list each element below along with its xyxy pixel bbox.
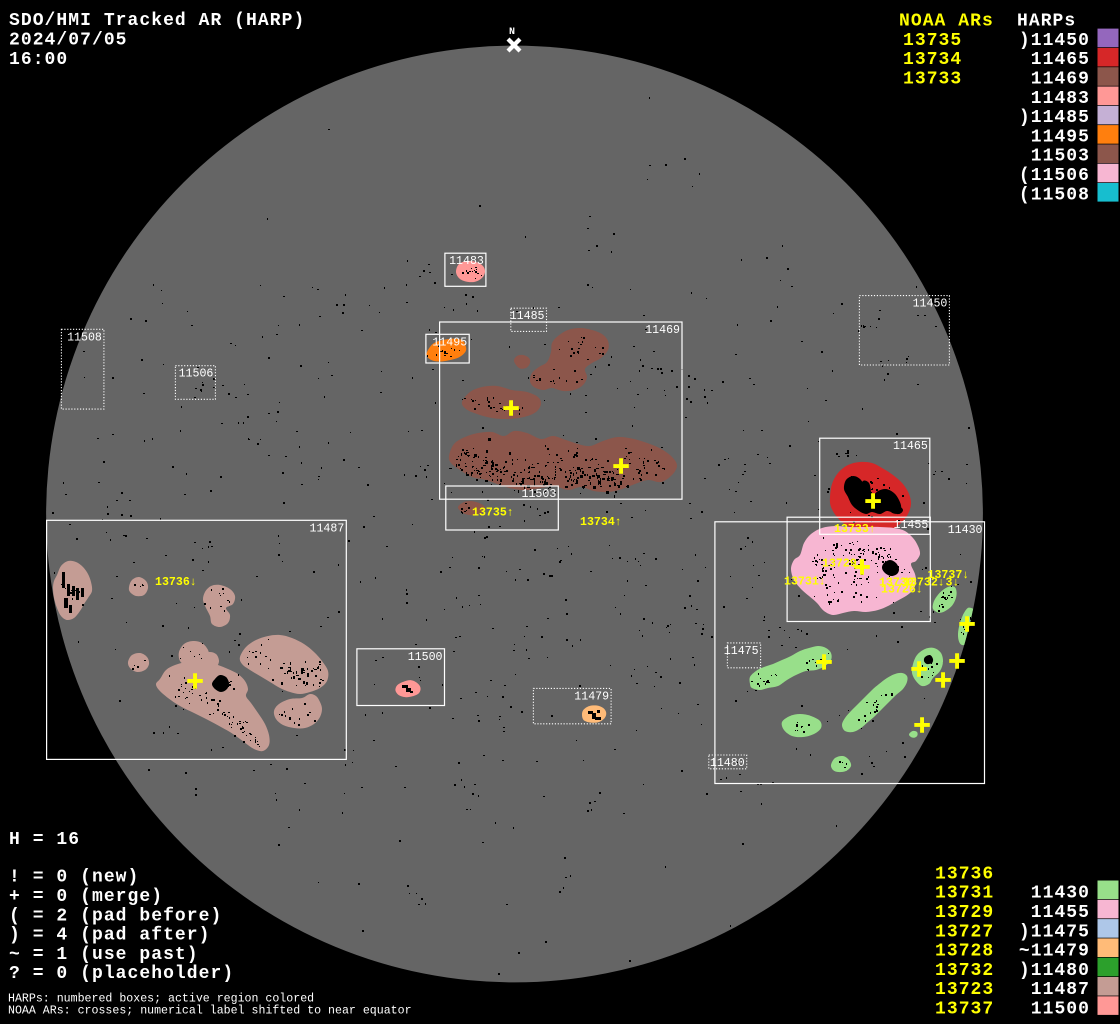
svg-text:)11485: )11485 — [1019, 108, 1090, 128]
svg-text:13737↓: 13737↓ — [928, 569, 970, 582]
svg-text:13736↓: 13736↓ — [155, 576, 197, 589]
svg-text:SDO/HMI Tracked AR (HARP): SDO/HMI Tracked AR (HARP) — [9, 11, 305, 31]
svg-text:11483: 11483 — [449, 255, 484, 268]
svg-text:13735↑: 13735↑ — [472, 507, 514, 520]
svg-text:( = 2 (pad before): ( = 2 (pad before) — [9, 906, 222, 926]
svg-text:11503: 11503 — [1031, 147, 1090, 167]
svg-text:(11506: (11506 — [1019, 166, 1090, 186]
svg-text:11495: 11495 — [432, 336, 467, 349]
svg-text:~ = 1 (use past): ~ = 1 (use past) — [9, 945, 199, 965]
svg-text:13733: 13733 — [903, 70, 962, 90]
svg-text:13735: 13735 — [903, 31, 962, 51]
svg-text:11480: 11480 — [710, 757, 745, 770]
svg-text:)11475: )11475 — [1019, 922, 1090, 942]
svg-text:13734: 13734 — [903, 50, 962, 70]
svg-text:13723: 13723 — [935, 980, 994, 1000]
svg-text:)11450: )11450 — [1019, 31, 1090, 51]
svg-text:11506: 11506 — [179, 368, 214, 381]
svg-text:13729: 13729 — [935, 903, 994, 923]
svg-text:13736: 13736 — [935, 864, 994, 884]
svg-text:? = 0 (placeholder): ? = 0 (placeholder) — [9, 964, 234, 984]
svg-text:13728: 13728 — [935, 942, 994, 962]
svg-text:13733↑: 13733↑ — [834, 523, 876, 536]
svg-text:! = 0 (new): ! = 0 (new) — [9, 868, 139, 888]
svg-text:11450: 11450 — [913, 298, 948, 311]
svg-text:11487: 11487 — [310, 522, 345, 535]
svg-text:H = 16: H = 16 — [9, 830, 80, 850]
svg-text:)11480: )11480 — [1019, 961, 1090, 981]
svg-text:11430: 11430 — [1031, 884, 1090, 904]
svg-text:13727: 13727 — [935, 922, 994, 942]
svg-text:HARPs: HARPs — [1017, 12, 1076, 32]
svg-text:11465: 11465 — [893, 440, 928, 453]
svg-text:11455: 11455 — [1031, 903, 1090, 923]
svg-text:11469: 11469 — [1031, 70, 1090, 90]
svg-text:(11508: (11508 — [1019, 185, 1090, 205]
svg-text:11475: 11475 — [724, 645, 759, 658]
svg-text:13734↑: 13734↑ — [580, 516, 622, 529]
svg-text:NOAA ARs: crosses; numerical l: NOAA ARs: crosses; numerical label shift… — [8, 1004, 412, 1017]
svg-text:13731↓: 13731↓ — [784, 576, 826, 589]
svg-text:11469: 11469 — [645, 324, 680, 337]
svg-text:11508: 11508 — [67, 331, 102, 344]
svg-text:13729↓: 13729↓ — [822, 558, 864, 571]
svg-text:13737: 13737 — [935, 1000, 994, 1020]
svg-text:13732: 13732 — [935, 961, 994, 981]
svg-text:N: N — [509, 27, 515, 38]
svg-text:13726↓: 13726↓ — [881, 584, 923, 597]
svg-text:11455: 11455 — [894, 519, 929, 532]
svg-text:16:00: 16:00 — [9, 50, 68, 70]
svg-text:) = 4 (pad after): ) = 4 (pad after) — [9, 926, 210, 946]
svg-text:~11479: ~11479 — [1019, 942, 1090, 962]
svg-text:11500: 11500 — [408, 651, 443, 664]
svg-text:NOAA ARs: NOAA ARs — [899, 12, 994, 32]
svg-text:11503: 11503 — [522, 488, 557, 501]
svg-text:11485: 11485 — [510, 310, 545, 323]
svg-text:2024/07/05: 2024/07/05 — [9, 31, 128, 51]
svg-text:11465: 11465 — [1031, 50, 1090, 70]
svg-text:11483: 11483 — [1031, 89, 1090, 109]
svg-text:11479: 11479 — [574, 690, 609, 703]
svg-text:11430: 11430 — [948, 524, 983, 537]
svg-text:13731: 13731 — [935, 884, 994, 904]
svg-text:11500: 11500 — [1031, 1000, 1090, 1020]
svg-text:+ = 0 (merge): + = 0 (merge) — [9, 887, 163, 907]
svg-text:11495: 11495 — [1031, 127, 1090, 147]
svg-text:11487: 11487 — [1031, 980, 1090, 1000]
